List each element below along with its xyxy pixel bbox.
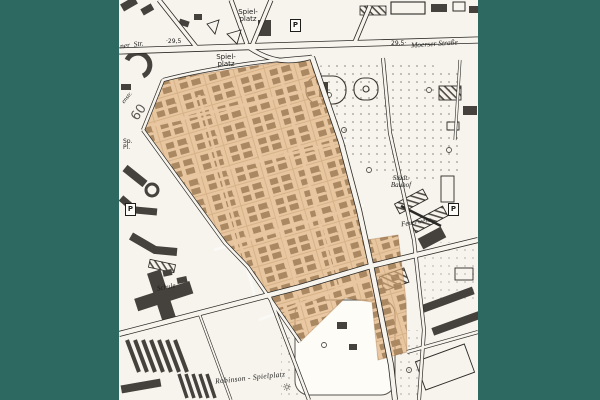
label-sp-pl: Sp.Pl. [123, 139, 133, 152]
curved-building [127, 53, 150, 76]
row-houses [127, 340, 187, 372]
label-line: platz [217, 60, 234, 68]
map-drawing [119, 0, 478, 400]
parking-icon: P [125, 203, 136, 216]
label-elevation-right: 29,5· [391, 41, 406, 47]
sun-icon: ☼ [282, 381, 292, 394]
label-staedt-bauhof: Städt.Bauhof [381, 175, 421, 190]
label-line: platz [239, 15, 256, 23]
screenshot-stage: Spiel-platz Spiel-platz Moerser Straße n… [0, 0, 600, 400]
label-elevation-left: ·29,5 [166, 39, 181, 45]
label-line: Pl. [123, 144, 130, 151]
label-spielplatz-north: Spiel-platz [231, 9, 265, 24]
label-spielplatz-mid: Spiel-platz [209, 54, 243, 69]
parking-icon: P [290, 19, 301, 32]
label-line: Bauhof [391, 181, 411, 189]
city-map: Spiel-platz Spiel-platz Moerser Straße n… [119, 0, 478, 400]
parking-icon: P [448, 203, 459, 216]
row-houses-2 [179, 374, 215, 398]
